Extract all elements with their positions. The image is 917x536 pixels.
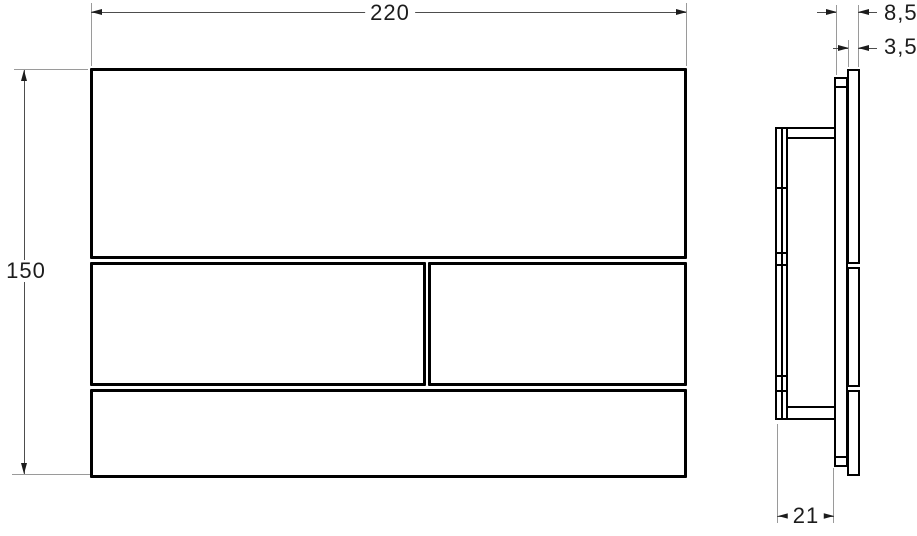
arrowhead-right — [823, 513, 834, 519]
frame-joint-tick — [776, 252, 787, 254]
left-flush-button — [90, 262, 426, 386]
face-plate-bottom-segment — [847, 390, 860, 476]
arrowhead-left — [91, 9, 102, 15]
extension-line — [836, 5, 837, 75]
arrowhead-left — [858, 9, 869, 15]
arrowhead-right — [826, 9, 837, 15]
carrier-bottom-cap-line — [836, 456, 846, 458]
face-plate-top-segment — [847, 69, 860, 264]
carrier-top-cap-line — [836, 86, 846, 88]
face-plate-button-segment — [847, 267, 860, 387]
technical-drawing: 220 150 8,5 3,5 21 — [0, 0, 917, 536]
arrowhead-left — [858, 45, 869, 51]
dimension-label-width: 220 — [365, 2, 415, 24]
frame-joint-tick — [776, 375, 787, 377]
dimension-label-overall-depth: 8,5 — [879, 2, 917, 24]
extension-line — [777, 424, 778, 523]
dimension-label-plate-thickness: 3,5 — [879, 36, 917, 58]
frame-joint-tick — [776, 187, 787, 189]
dimension-label-height: 150 — [1, 260, 51, 282]
arrowhead-right — [838, 45, 849, 51]
carrier-plate — [834, 77, 848, 467]
extension-line — [12, 474, 90, 475]
arrowhead-up — [21, 70, 27, 81]
right-flush-button — [428, 262, 687, 386]
frame-joint-tick — [776, 264, 787, 266]
top-panel-face — [90, 68, 687, 259]
bottom-panel-face — [90, 389, 687, 478]
frame-joint-tick — [776, 390, 787, 392]
arrowhead-right — [676, 9, 687, 15]
arrowhead-down — [21, 463, 27, 474]
dimension-label-frame-depth: 21 — [788, 505, 824, 527]
